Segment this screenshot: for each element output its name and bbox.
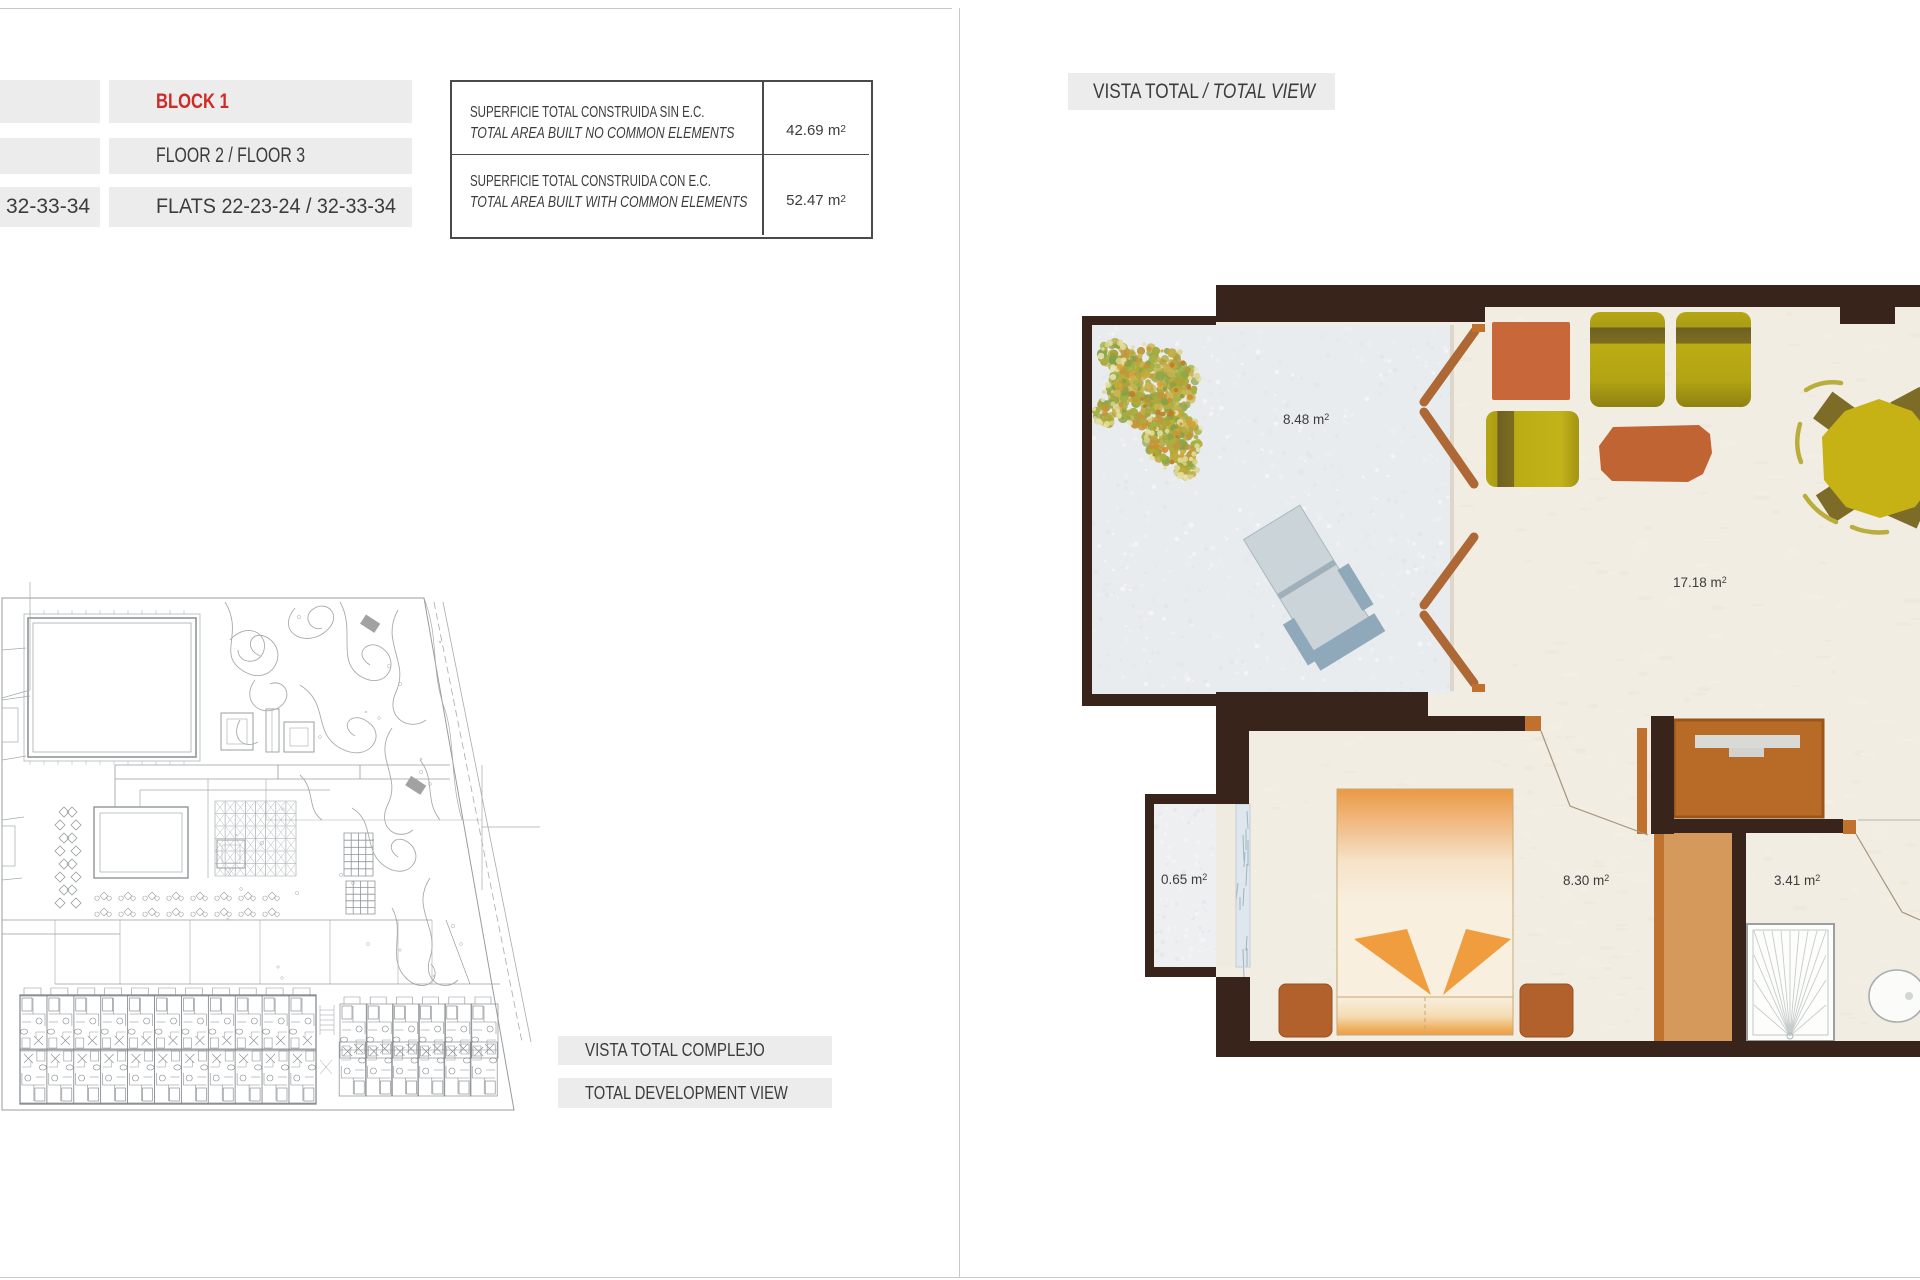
svg-text:0.65 m2: 0.65 m2 xyxy=(1161,872,1207,887)
svg-text:8.30 m2: 8.30 m2 xyxy=(1563,873,1609,888)
svg-text:8.48 m2: 8.48 m2 xyxy=(1283,412,1329,427)
svg-text:3.41 m2: 3.41 m2 xyxy=(1774,873,1820,888)
svg-text:17.18 m2: 17.18 m2 xyxy=(1673,575,1727,590)
